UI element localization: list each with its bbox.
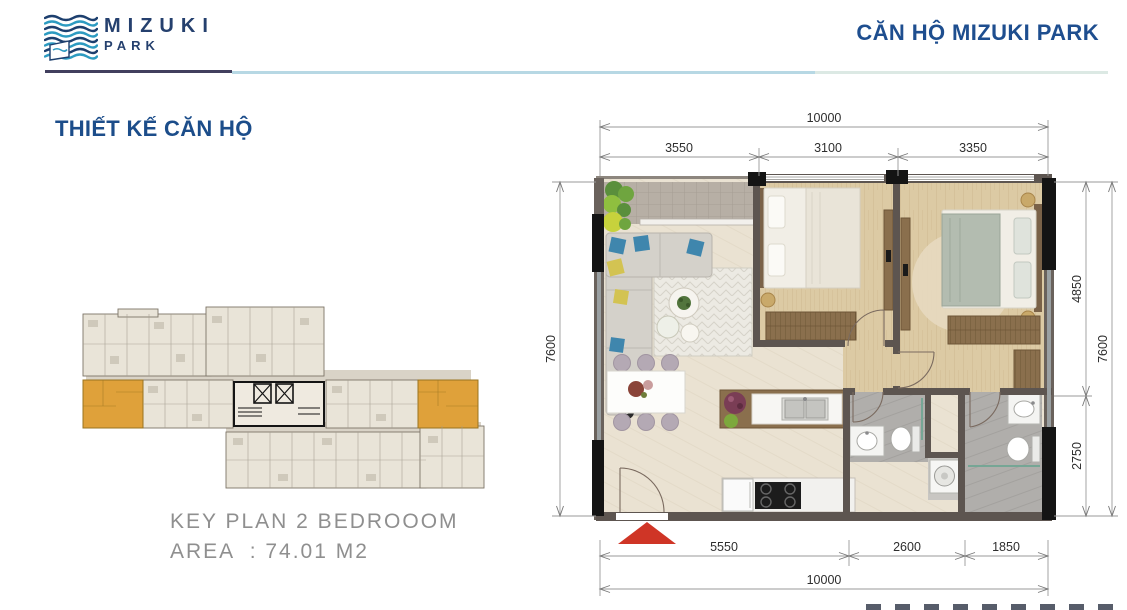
rug bbox=[654, 268, 752, 356]
floor-plan-figure: 10000 3550 3100 3350 5550 2600 1850 1000… bbox=[0, 0, 1127, 610]
dim-bottom-seg3: 1850 bbox=[992, 540, 1020, 554]
cropped-photo-strip bbox=[866, 604, 1127, 610]
wc1-toilet bbox=[891, 427, 911, 451]
bed1-stool bbox=[761, 293, 775, 307]
dim-top-seg1: 3550 bbox=[665, 141, 693, 155]
dim-right-overall: 7600 bbox=[1096, 335, 1110, 363]
entrance-arrow bbox=[618, 522, 676, 544]
dim-left-overall: 7600 bbox=[544, 335, 558, 363]
dim-top-overall: 10000 bbox=[807, 111, 842, 125]
dim-bottom-overall: 10000 bbox=[807, 573, 842, 587]
laundry bbox=[930, 460, 959, 493]
wc2-toilet bbox=[1007, 437, 1029, 461]
dim-bottom-seg2: 2600 bbox=[893, 540, 921, 554]
dim-bottom-seg1: 5550 bbox=[710, 540, 738, 554]
bed2-wardrobe2 bbox=[1014, 350, 1040, 392]
fridge bbox=[723, 479, 753, 511]
corridor-floor bbox=[843, 344, 900, 392]
balcony-sliding-door bbox=[640, 219, 756, 225]
slide-page: { "header": { "logo": { "title": "MIZUKI… bbox=[0, 0, 1127, 610]
dim-top-seg2: 3100 bbox=[814, 141, 842, 155]
balcony-plants bbox=[603, 181, 634, 232]
dining-area bbox=[607, 355, 685, 431]
dining-table bbox=[607, 371, 685, 413]
dim-right-seg2: 2750 bbox=[1070, 442, 1084, 470]
dim-top-seg3: 3350 bbox=[959, 141, 987, 155]
bedroom1 bbox=[757, 188, 860, 340]
dim-right-seg1: 4850 bbox=[1070, 275, 1084, 303]
